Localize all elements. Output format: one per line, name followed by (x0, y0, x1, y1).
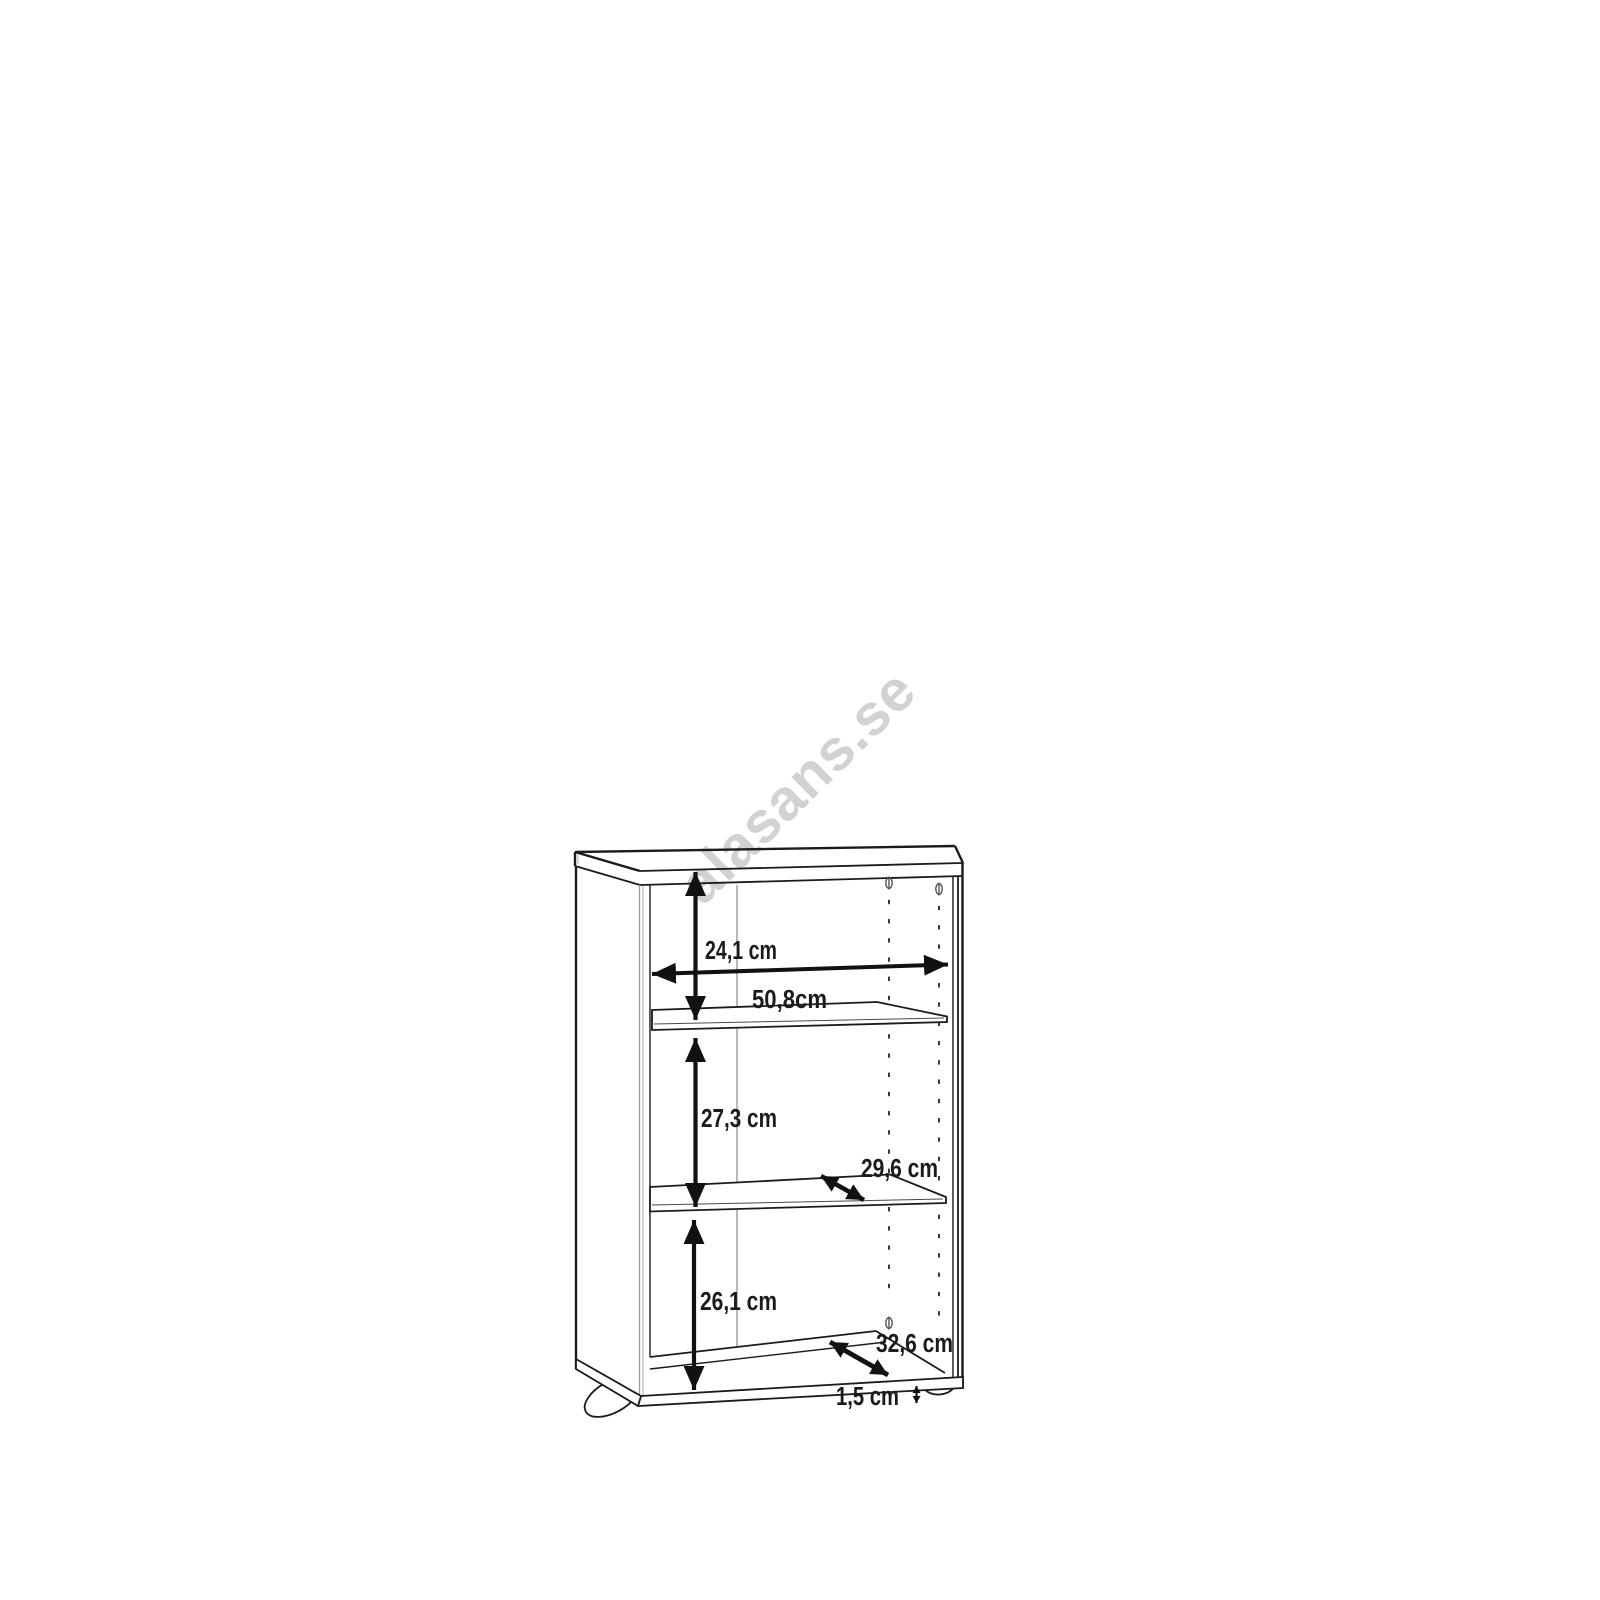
dim-label-inner-width: 50,8cm (752, 986, 827, 1014)
dim-label-bottom-compartment: 26,1 cm (700, 1288, 777, 1316)
dim-label-bottom-depth: 32,6 cm (876, 1330, 953, 1358)
dim-label-middle-compartment: 27,3 cm (701, 1105, 777, 1133)
diagram-canvas: alasans.se (0, 0, 1600, 1600)
bookcase-dimension-diagram: alasans.se (0, 0, 1600, 1600)
dim-label-shelf-depth: 29,6 cm (861, 1155, 938, 1183)
dim-label-plinth-thickness: 1,5 cm (836, 1383, 899, 1411)
dim-label-top-compartment: 24,1 cm (705, 937, 777, 965)
